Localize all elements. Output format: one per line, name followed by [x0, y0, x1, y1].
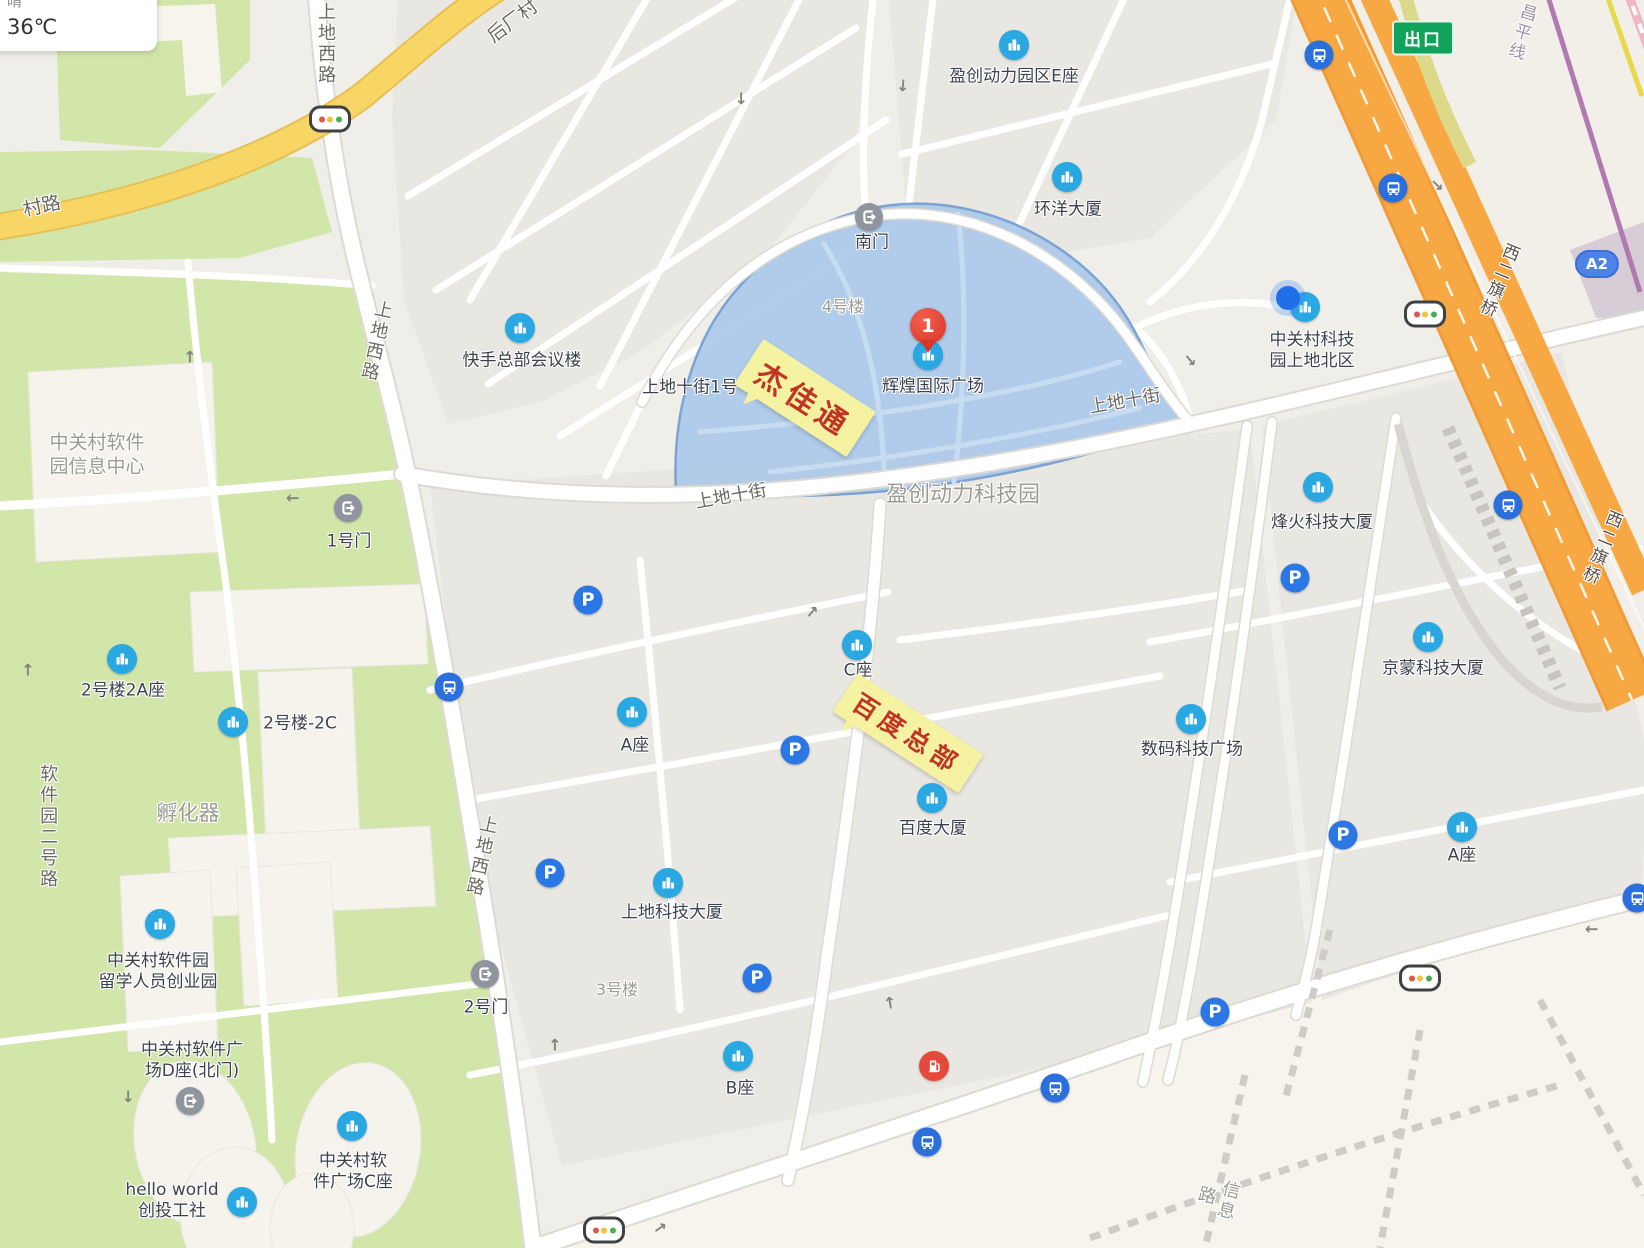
poi-label[interactable]: 上地科技大厦 [621, 902, 723, 923]
oneway-arrow: ↑ [183, 348, 196, 367]
bus-stop-icon[interactable] [1305, 41, 1334, 70]
poi-label[interactable]: 盈创动力园区E座 [949, 66, 1079, 87]
poi-label[interactable]: 南门 [855, 232, 889, 253]
area-label: 中关村软件 园信息中心 [49, 431, 144, 478]
poi-label[interactable]: 京蒙科技大厦 [1382, 658, 1484, 679]
poi-label[interactable]: hello world 创投工社 [125, 1180, 218, 1222]
gate-icon[interactable] [176, 1087, 204, 1115]
bus-stop-icon[interactable] [1379, 174, 1408, 203]
current-location-dot [1276, 286, 1300, 310]
road-label: 软件园二号路 [36, 764, 58, 890]
poi-label[interactable]: 2号楼-2C [263, 713, 337, 734]
traffic-light-icon [583, 1217, 625, 1244]
weather-condition: 晴 [7, 0, 147, 11]
building-icon[interactable] [1052, 162, 1082, 192]
building-icon[interactable] [842, 630, 872, 660]
parking-icon[interactable]: P [781, 736, 810, 765]
poi-label[interactable]: 2号门 [464, 997, 509, 1018]
area-label: 盈创动力科技园 [886, 481, 1040, 508]
poi-label[interactable]: 百度大厦 [899, 818, 967, 839]
weather-widget: 晴 36℃ [0, 0, 157, 51]
poi-label[interactable]: 辉煌国际广场 [882, 376, 984, 397]
area-label: 孵化器 [157, 800, 220, 826]
bus-stop-icon[interactable] [1041, 1074, 1070, 1103]
oneway-arrow: ↑ [1583, 922, 1602, 935]
bus-stop-icon[interactable] [435, 673, 464, 702]
area-label: 4号楼 [822, 297, 864, 317]
bus-stop-icon[interactable] [1494, 491, 1523, 520]
gate-icon[interactable] [855, 203, 883, 231]
building-icon[interactable] [218, 707, 248, 737]
poi-label[interactable]: 中关村科技 园上地北区 [1270, 330, 1355, 372]
gate-icon[interactable] [471, 960, 499, 988]
oneway-arrow: ↑ [121, 1087, 134, 1106]
building-icon[interactable] [723, 1041, 753, 1071]
poi-label[interactable]: 中关村软件园 留学人员创业园 [99, 951, 218, 993]
building-icon[interactable] [107, 644, 137, 674]
building-icon[interactable] [505, 313, 535, 343]
poi-label[interactable]: 上地十街1号 [642, 377, 738, 398]
poi-label[interactable]: A座 [621, 735, 650, 756]
traffic-light-icon [1399, 965, 1441, 992]
road-label: 上地西路 [314, 2, 336, 86]
building-icon[interactable] [337, 1111, 367, 1141]
weather-temperature: 36℃ [7, 15, 147, 39]
oneway-arrow: ↑ [734, 89, 747, 108]
exit-badge: 出口 [1392, 21, 1454, 56]
poi-label[interactable]: 环洋大厦 [1034, 199, 1102, 220]
bus-stop-icon[interactable] [1623, 884, 1644, 913]
poi-label[interactable]: A座 [1448, 845, 1477, 866]
traffic-light-icon [1404, 301, 1446, 328]
poi-label[interactable]: 烽火科技大厦 [1271, 512, 1373, 533]
oneway-arrow: ↑ [284, 491, 303, 504]
oneway-arrow: ↑ [895, 75, 910, 95]
building-icon[interactable] [145, 909, 175, 939]
parking-icon[interactable]: P [1281, 564, 1310, 593]
building-icon[interactable] [227, 1187, 257, 1217]
building-icon[interactable] [653, 868, 683, 898]
traffic-light-icon [309, 106, 351, 133]
parking-icon[interactable]: P [574, 586, 603, 615]
building-icon[interactable] [617, 697, 647, 727]
marker-pin[interactable]: 1 [910, 308, 946, 344]
building-icon[interactable] [1303, 472, 1333, 502]
poi-label[interactable]: 快手总部会议楼 [463, 350, 582, 371]
building-icon[interactable] [1413, 622, 1443, 652]
building-icon[interactable] [999, 30, 1029, 60]
poi-label[interactable]: 1号门 [327, 531, 372, 552]
parking-icon[interactable]: P [1201, 998, 1230, 1027]
oneway-arrow: ↑ [21, 661, 34, 680]
area-label: 3号楼 [596, 980, 638, 1000]
poi-label[interactable]: 2号楼2A座 [81, 680, 165, 701]
poi-label[interactable]: 中关村软 件广场C座 [313, 1151, 393, 1193]
oneway-arrow: ↑ [548, 1036, 561, 1055]
poi-label[interactable]: B座 [726, 1078, 755, 1099]
parking-icon[interactable]: P [536, 859, 565, 888]
poi-label[interactable]: 数码科技广场 [1141, 739, 1243, 760]
map-viewport[interactable]: 晴 36℃ 1 盈创动力园区E座环洋大厦快手总部会议楼辉煌国际广场中关村科技 园… [0, 0, 1644, 1248]
gate-icon[interactable] [334, 494, 362, 522]
parking-icon[interactable]: P [743, 964, 772, 993]
building-icon[interactable] [1447, 812, 1477, 842]
poi-label[interactable]: 中关村软件广 场D座(北门) [141, 1040, 243, 1082]
road-number-badge: A2 [1575, 250, 1619, 278]
gas-station-icon[interactable] [919, 1051, 949, 1081]
building-icon[interactable] [917, 783, 947, 813]
marker-number: 1 [921, 315, 934, 337]
building-icon[interactable] [1176, 704, 1206, 734]
bus-stop-icon[interactable] [913, 1128, 942, 1157]
parking-icon[interactable]: P [1329, 821, 1358, 850]
